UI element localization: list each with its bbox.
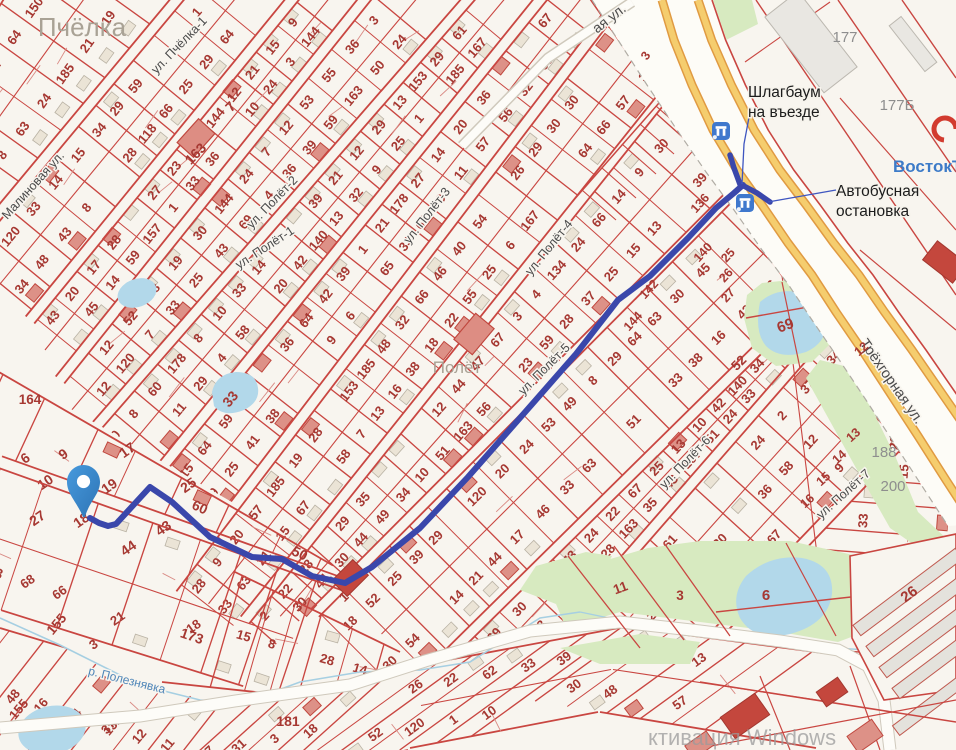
svg-text:ктивация Windows: ктивация Windows xyxy=(648,725,836,750)
svg-text:на въезде: на въезде xyxy=(748,104,820,121)
svg-text:6: 6 xyxy=(762,587,770,604)
svg-text:164: 164 xyxy=(19,392,42,407)
svg-text:ВостокТр: ВостокТр xyxy=(893,157,956,176)
svg-text:33: 33 xyxy=(855,513,871,529)
svg-text:181: 181 xyxy=(276,713,300,729)
svg-text:Шлагбаум: Шлагбаум xyxy=(748,84,821,101)
svg-text:Автобусная: Автобусная xyxy=(836,183,919,200)
svg-text:177Б: 177Б xyxy=(880,97,915,114)
svg-text:177: 177 xyxy=(832,29,857,46)
svg-text:188: 188 xyxy=(871,444,896,461)
svg-text:3: 3 xyxy=(676,588,684,603)
svg-text:Пчёлка: Пчёлка xyxy=(38,12,127,42)
svg-text:Полёт: Полёт xyxy=(433,358,482,377)
svg-text:остановка: остановка xyxy=(836,203,909,220)
svg-text:200: 200 xyxy=(880,478,905,495)
